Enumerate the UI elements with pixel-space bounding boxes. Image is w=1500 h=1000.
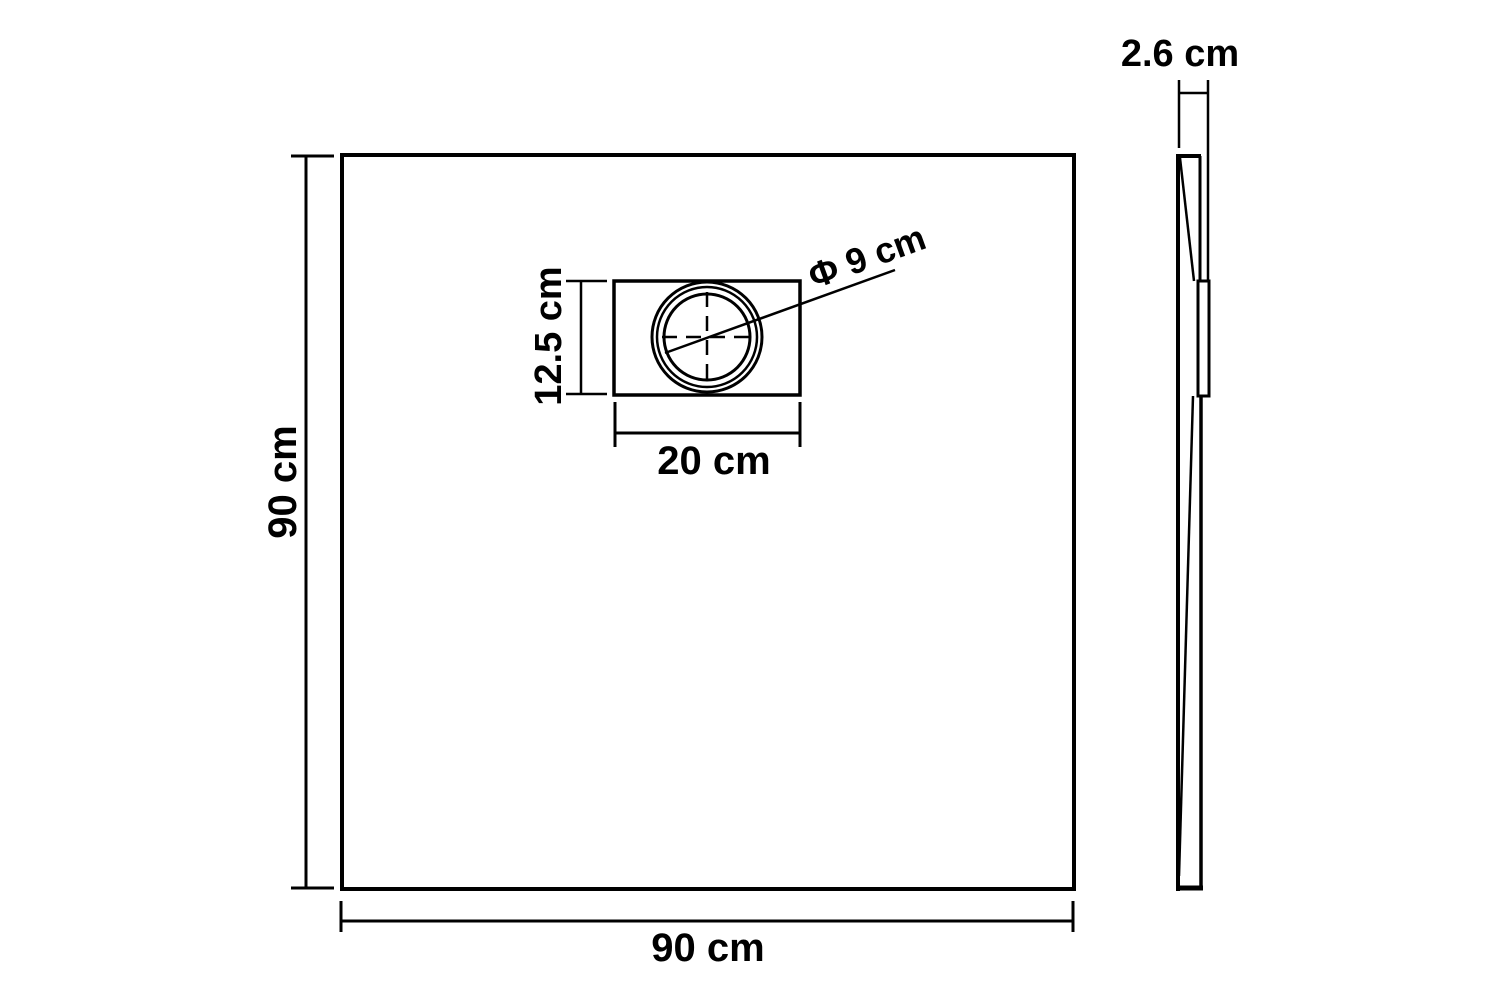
label-drain-plate-width: 20 cm bbox=[657, 441, 770, 481]
label-drain-plate-height: 12.5 cm bbox=[530, 266, 568, 405]
label-tray-width: 90 cm bbox=[651, 928, 764, 968]
label-tray-height: 90 cm bbox=[263, 425, 303, 538]
profile-surface-slope-lower bbox=[1179, 396, 1193, 876]
diagram-canvas: 90 cm 90 cm 2.6 cm 12.5 cm 20 cm Φ 9 cm bbox=[0, 0, 1500, 1000]
profile-drain-flange bbox=[1198, 281, 1209, 396]
dimension-drain-height bbox=[566, 281, 607, 394]
dimension-drawing bbox=[0, 0, 1500, 1000]
profile-surface-slope-upper bbox=[1180, 158, 1194, 281]
label-tray-thickness: 2.6 cm bbox=[1121, 35, 1239, 73]
tray-outline bbox=[342, 155, 1074, 889]
side-view bbox=[1176, 154, 1209, 891]
top-view bbox=[342, 155, 1074, 889]
